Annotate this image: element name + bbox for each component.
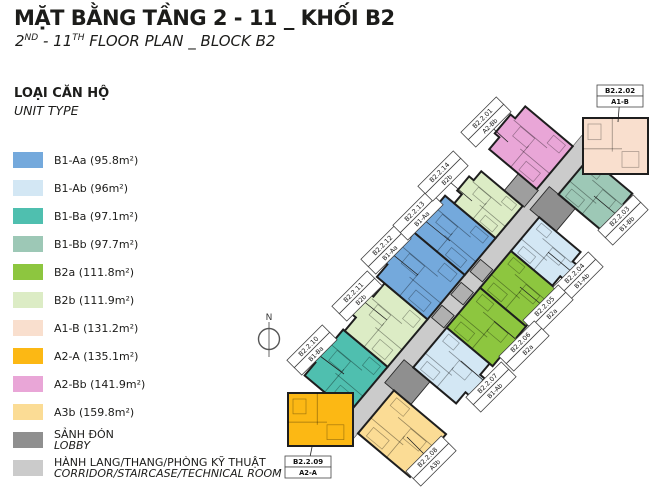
unit-number: B2.2.02 [605,87,635,95]
unit-type: A1-B [611,98,629,106]
floor-plan-page: MẶT BẰNG TẦNG 2 - 11 _ KHỐI B2 2ND - 11T… [0,0,652,500]
unit-B2.2.02 [583,118,648,174]
floor-plan-drawing: NB2.2.01A2-BbB2.2.02A1-BB2.2.03B1-BbB2.2… [0,0,652,500]
unit-number: B2.2.09 [293,458,323,466]
svg-text:N: N [266,313,273,323]
unit-callout-B2.2.02: B2.2.02A1-B [597,85,643,107]
unit-type: A2-A [299,469,318,477]
north-arrow: N [259,313,280,357]
unit-outline [583,118,648,174]
unit-callout-B2.2.09: B2.2.09A2-A [285,456,331,478]
unit-outline [288,393,353,446]
unit-B2.2.09 [288,393,353,446]
